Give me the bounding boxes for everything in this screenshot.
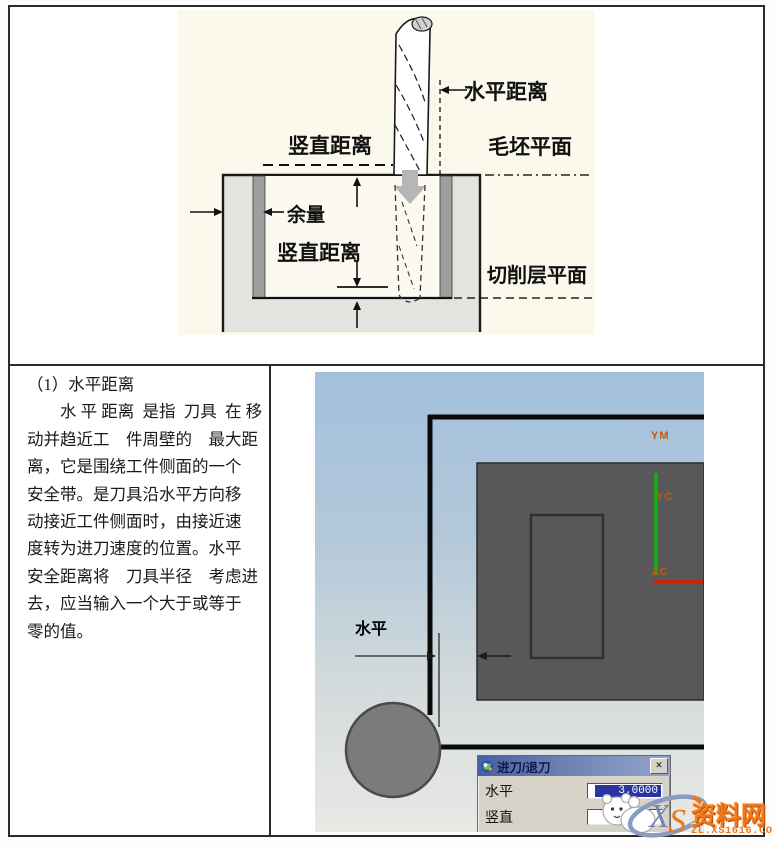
paragraph-line: 零的值。 bbox=[27, 618, 269, 645]
paragraph-line: 动并趋近工 件周壁的 最大距 bbox=[27, 426, 269, 453]
logo-letter-x: X bbox=[647, 798, 671, 835]
document-page: 水平距离 竖直距离 毛坯平面 余量 竖直距离 切削层平面 （1）水平距离 水 平… bbox=[0, 0, 773, 845]
watermark-url: ZL.XS1616.COM bbox=[691, 825, 773, 837]
horizontal-dim-label: 水平 bbox=[355, 615, 387, 639]
section-heading: （1）水平距离 bbox=[27, 371, 269, 398]
label-allowance: 余量 bbox=[286, 203, 325, 226]
label-vertical-distance-pocket: 竖直距离 bbox=[277, 241, 361, 265]
paragraph-line: 水 平 距离 是指 刀具 在 移 bbox=[27, 398, 269, 425]
cad-screenshot-cell: YM YC ZC 水平 进刀/退刀 bbox=[271, 366, 763, 835]
drill-tool-sketch bbox=[394, 17, 432, 175]
tool-distance-diagram: 水平距离 竖直距离 毛坯平面 余量 竖直距离 切削层平面 bbox=[178, 10, 595, 335]
explanation-text-cell: （1）水平距离 水 平 距离 是指 刀具 在 移 动并趋近工 件周壁的 最大距 … bbox=[10, 366, 271, 835]
zc-axis-label: ZC bbox=[652, 566, 669, 578]
stock-strip-right bbox=[440, 176, 452, 298]
label-blank-plane: 毛坯平面 bbox=[488, 135, 572, 159]
content-row: （1）水平距离 水 平 距离 是指 刀具 在 移 动并趋近工 件周壁的 最大距 … bbox=[10, 366, 763, 835]
paragraph-line: 动接近工件侧面时，由接近速 bbox=[27, 508, 269, 535]
ym-axis-label: YM bbox=[651, 430, 670, 442]
paragraph-line: 安全距离将 刀具半径 考虑进 bbox=[27, 563, 269, 590]
paragraph-line: 离，它是围绕工件侧面的一个 bbox=[27, 453, 269, 480]
paragraph-line: 度转为进刀速度的位置。水平 bbox=[27, 535, 269, 562]
yc-axis-label: YC bbox=[656, 491, 673, 503]
label-vertical-distance-top: 竖直距离 bbox=[288, 134, 372, 158]
label-horizontal-distance: 水平距离 bbox=[464, 80, 548, 104]
dialog-app-icon bbox=[481, 760, 494, 773]
horizontal-field-label: 水平 bbox=[485, 781, 513, 801]
watermark: X S 资料网 ZL.XS1616.COM bbox=[597, 767, 773, 845]
diagram-canvas: 水平距离 竖直距离 毛坯平面 余量 竖直距离 切削层平面 bbox=[178, 10, 595, 335]
logo-letter-s: S bbox=[669, 803, 686, 840]
paragraph-line: 去，应当输入一个大于或等于 bbox=[27, 590, 269, 617]
cad-viewport: YM YC ZC 水平 进刀/退刀 bbox=[315, 372, 704, 832]
paragraph-line: 安全带。是刀具沿水平方向移 bbox=[27, 481, 269, 508]
stock-strip-left bbox=[253, 176, 265, 298]
diagram-row: 水平距离 竖直距离 毛坯平面 余量 竖直距离 切削层平面 bbox=[10, 7, 763, 366]
vertical-field-label: 竖直 bbox=[485, 807, 513, 827]
label-cutting-layer-plane: 切削层平面 bbox=[487, 263, 587, 287]
tool-shank-hatch bbox=[412, 17, 432, 31]
tool-circle bbox=[346, 703, 440, 797]
page-table-border: 水平距离 竖直距离 毛坯平面 余量 竖直距离 切削层平面 （1）水平距离 水 平… bbox=[8, 5, 765, 837]
